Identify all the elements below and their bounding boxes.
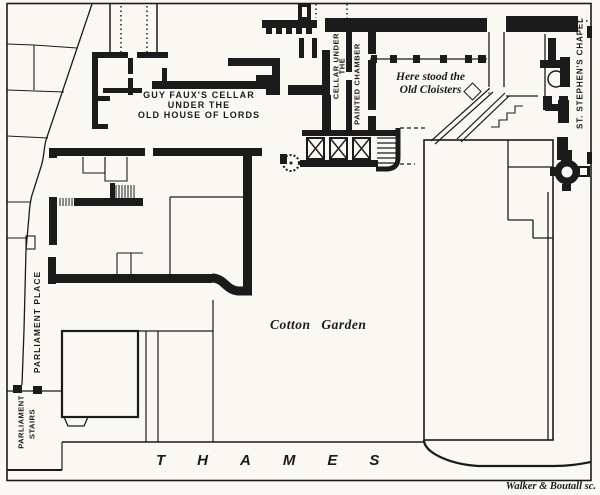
plan-drawing [0, 0, 600, 495]
hatched-pillar [330, 138, 347, 159]
label-painted-chamber: PAINTED CHAMBER [353, 43, 362, 125]
label-parliament-place: PARLIAMENT PLACE [32, 271, 42, 373]
label-line: Here stood the [383, 71, 478, 84]
label-line: UNDER THE [126, 100, 272, 110]
hatched-pillar [353, 138, 370, 159]
hatched-pillar [307, 138, 324, 159]
spiral-stair [280, 154, 299, 171]
label-line: GUY FAUX'S CELLAR [126, 90, 272, 100]
label-old-cloisters: Here stood the Old Cloisters [383, 71, 478, 97]
label-line: OLD HOUSE OF LORDS [126, 110, 272, 120]
label-st-stephens-chapel: ST. STEPHEN'S CHAPEL [576, 17, 585, 129]
diagonal-passage [431, 89, 523, 144]
cloister-court [370, 32, 523, 164]
label-the: THE [338, 58, 347, 75]
engraver-credit: Walker & Boutall sc. [506, 481, 596, 492]
label-cotton-garden: Cotton Garden [270, 317, 366, 333]
cellar-complex-walls [48, 3, 578, 291]
label-parliament-stairs-line1: PARLIAMENT [17, 395, 26, 449]
historic-plan: GUY FAUX'S CELLAR UNDER THE OLD HOUSE OF… [0, 0, 600, 495]
stair-turret [550, 150, 590, 191]
label-guy-faux-cellar: GUY FAUX'S CELLAR UNDER THE OLD HOUSE OF… [126, 90, 272, 120]
label-thames: THAMES [156, 452, 411, 469]
label-parliament-stairs-line2: STAIRS [28, 409, 37, 439]
garden-buildings [62, 300, 213, 442]
cellar-pillars-and-stairs [280, 128, 398, 171]
